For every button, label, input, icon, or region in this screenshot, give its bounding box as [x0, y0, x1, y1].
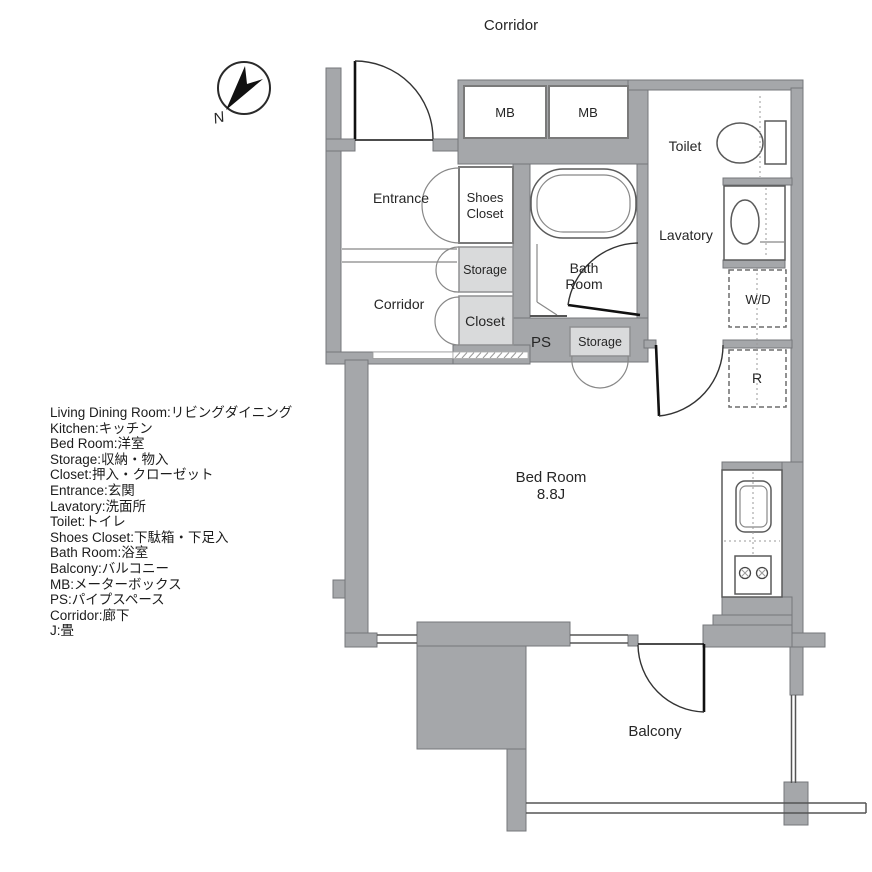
wall [507, 749, 526, 831]
kitchen-counter [722, 470, 782, 597]
floor-plan-page: N Corridor MB MB Entrance Shoes Closet S… [0, 0, 872, 872]
wall [417, 646, 526, 749]
label-bath-2: Room [565, 276, 602, 292]
wall [723, 178, 792, 185]
wall [326, 68, 341, 353]
legend-line: Corridor:廊下 [50, 608, 292, 624]
label-bath-1: Bath [570, 260, 599, 276]
label-mb-2: MB [578, 105, 598, 120]
wall [333, 580, 345, 598]
label-ps: PS [531, 334, 551, 351]
bathtub-icon [531, 169, 636, 238]
label-storage-lower: Storage [578, 335, 622, 349]
label-shoes-closet-1: Shoes [467, 190, 504, 205]
legend-line: Bed Room:洋室 [50, 436, 292, 452]
wall [345, 360, 368, 647]
label-balcony: Balcony [628, 723, 682, 740]
wall [703, 625, 792, 647]
bath-step-lines [530, 244, 567, 316]
legend-line: Bath Room:浴室 [50, 545, 292, 561]
closet-door-arc-icon [435, 297, 459, 345]
wall [637, 164, 648, 318]
label-mb-1: MB [495, 105, 515, 120]
wall [628, 635, 638, 646]
label-toilet: Toilet [669, 138, 702, 154]
corridor-opening [373, 352, 453, 359]
label-outside-corridor: Corridor [484, 17, 538, 34]
wall [417, 622, 570, 646]
wall [513, 164, 530, 318]
legend-line: Lavatory:洗面所 [50, 499, 292, 515]
legend-line: Storage:収納・物入 [50, 452, 292, 468]
wall [792, 633, 825, 647]
wall [644, 340, 656, 348]
storage-door-arc-icon [436, 247, 459, 292]
north-arrow-icon [226, 66, 263, 110]
lavatory-sink-icon [724, 186, 785, 260]
label-lavatory: Lavatory [659, 227, 713, 243]
label-bedroom: Bed Room [516, 469, 587, 486]
wall [723, 260, 785, 268]
entrance-door-icon [355, 61, 433, 140]
legend-line: J:畳 [50, 623, 292, 639]
wall [713, 615, 792, 625]
label-closet: Closet [465, 313, 505, 329]
wall [722, 597, 792, 615]
wall [433, 139, 458, 151]
legend-line: Living Dining Room:リビングダイニング [50, 405, 292, 421]
label-storage-upper: Storage [463, 263, 507, 277]
shoes-closet-box [459, 167, 513, 243]
legend-line: MB:メーターボックス [50, 577, 292, 593]
legend: Living Dining Room:リビングダイニング Kitchen:キッチ… [50, 405, 292, 639]
legend-line: Entrance:玄関 [50, 483, 292, 499]
legend-line: Closet:押入・クローゼット [50, 467, 292, 483]
hatch-threshold [453, 352, 528, 359]
legend-line: PS:パイプスペース [50, 592, 292, 608]
stove-icon [735, 556, 771, 594]
label-entrance: Entrance [373, 190, 429, 206]
wall [790, 647, 803, 695]
toilet-icon [717, 96, 786, 177]
balcony-door-icon [638, 644, 704, 712]
wall [628, 80, 803, 90]
legend-line: Shoes Closet:下駄箱・下足入 [50, 530, 292, 546]
legend-line: Kitchen:キッチン [50, 421, 292, 437]
compass-north-label: N [212, 108, 227, 127]
label-shoes-closet-2: Closet [467, 206, 504, 221]
compass-icon: N [212, 62, 270, 128]
label-wd: W/D [745, 292, 770, 307]
entrance-step-lines [342, 249, 457, 262]
label-bedroom-size: 8.8J [537, 486, 565, 503]
wall [791, 88, 803, 462]
balcony-railing [526, 695, 866, 813]
label-corridor-inner: Corridor [374, 296, 425, 312]
legend-line: Balcony:バルコニー [50, 561, 292, 577]
label-refrigerator: R [752, 370, 762, 386]
wall [345, 633, 377, 647]
wall [326, 139, 355, 151]
bedroom-door-icon [656, 345, 723, 416]
legend-line: Toilet:トイレ [50, 514, 292, 530]
